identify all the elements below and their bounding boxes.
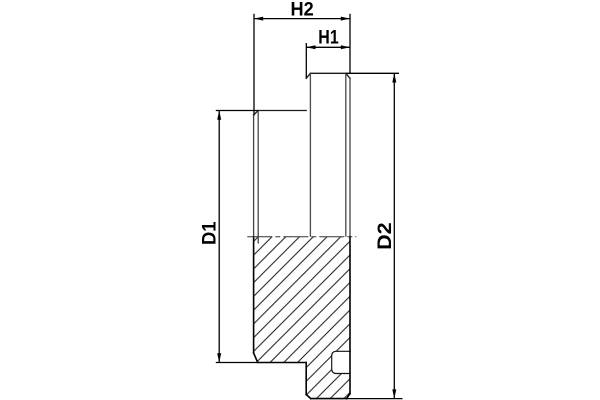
svg-text:H2: H2 — [291, 0, 314, 21]
svg-text:D2: D2 — [374, 222, 396, 250]
svg-text:D1: D1 — [198, 221, 220, 245]
svg-text:H1: H1 — [318, 27, 339, 49]
